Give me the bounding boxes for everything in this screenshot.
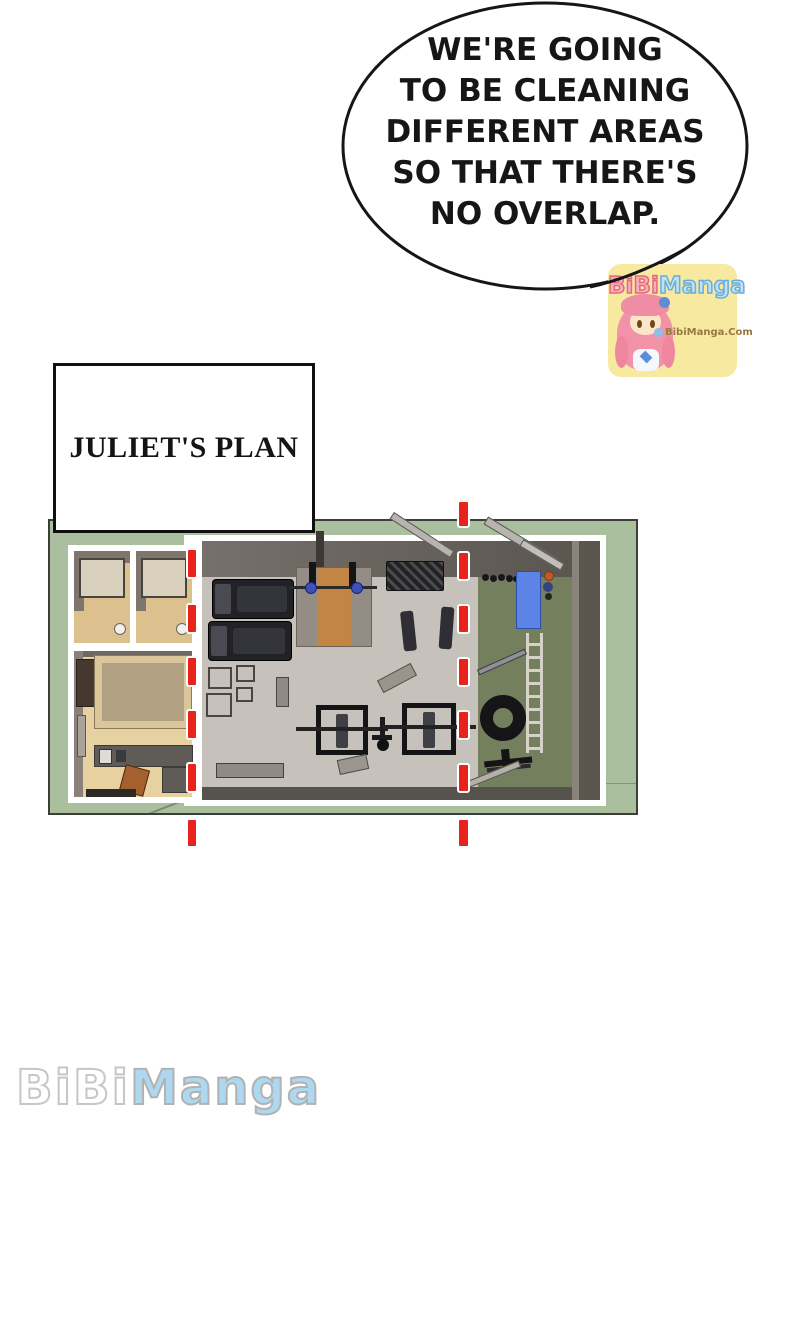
kettlebell-icon [506,575,513,582]
speech-bubble-text: WE'RE GOING TO BE CLEANING DIFFERENT ARE… [345,30,745,235]
floor-plan [48,519,638,815]
red-divider-dash [457,657,470,687]
red-divider-dash [186,656,198,687]
red-divider-dash [457,500,470,528]
treadmill-icon [212,579,294,619]
toilet-icon [114,623,126,635]
treadmill-deck [233,628,285,654]
bathroom-stall [136,551,192,643]
weight-plate-icon [351,582,363,594]
red-divider-dash [457,818,470,848]
kettlebell-icon [498,574,505,581]
lifting-platform [296,567,372,647]
bedroom [74,651,192,797]
plyo-box-icon [208,667,232,689]
tire-icon [480,695,526,741]
badge-site-url: BibiManga.Com [665,327,753,338]
treadmill-deck [237,586,287,612]
red-divider-dash [186,818,198,848]
treadmill-console [211,626,227,656]
plyo-box-icon [206,693,232,717]
weight-plate-icon [377,739,389,751]
chibi-hair-curl-icon [662,336,675,368]
barbell-icon [296,727,388,731]
kettlebell-icon [482,574,489,581]
agility-ladder-icon [526,633,543,753]
wall-inner-face [572,541,579,800]
gym-bottom-wall [202,787,572,800]
monitor-icon [99,749,112,764]
desk-item [116,750,126,762]
copyright-icon [654,328,663,337]
shower-tub [79,558,125,598]
rack-bench-pad [423,712,435,748]
red-divider-dash [457,763,470,793]
red-divider-dash [186,709,198,740]
shower-tub [141,558,187,598]
red-divider-dash [457,551,470,581]
platform-wood [317,568,351,646]
stepper-icon [276,677,289,707]
plyo-box-icon [236,687,253,702]
bathroom-stall [74,551,130,643]
medicine-ball-icon [544,571,554,581]
footer-watermark: BiBiManga [16,1060,321,1116]
doormat [86,789,136,797]
plyo-box-icon [236,665,255,682]
plan-title-box: JULIET'S PLAN [53,363,315,533]
mirror [77,715,86,757]
medicine-ball-icon [543,582,553,592]
rack-bench-pad [336,714,348,748]
red-divider-dash [186,603,198,634]
bed [94,655,192,729]
red-divider-dash [186,762,198,793]
gym-right-wall [572,541,600,800]
footer-watermark-bibi: BiBi [16,1060,130,1116]
treadmill-console [215,584,231,614]
chibi-eye-icon [637,320,642,328]
dumbbell-rack-icon [386,561,444,591]
bed-blanket [102,663,184,721]
barbell-icon [289,586,377,589]
annex-cross-wall [68,643,198,651]
kettlebell-icon [490,575,497,582]
exercise-mat [516,571,541,629]
treadmill-icon [208,621,292,661]
chibi-hair-curl-icon [615,336,628,368]
comic-page: WE'RE GOING TO BE CLEANING DIFFERENT ARE… [0,0,800,1342]
red-divider-dash [186,548,198,579]
bench-icon [216,763,284,778]
footer-watermark-manga: Manga [130,1060,321,1116]
chibi-eye-icon [650,320,655,328]
medicine-ball-icon [545,593,552,600]
weight-plate-icon [305,582,317,594]
red-divider-dash [457,710,470,740]
power-rack-icon [402,703,456,755]
red-divider-dash [457,604,470,634]
bubble-arc-overlay [560,240,760,320]
plan-title: JULIET'S PLAN [69,431,298,465]
